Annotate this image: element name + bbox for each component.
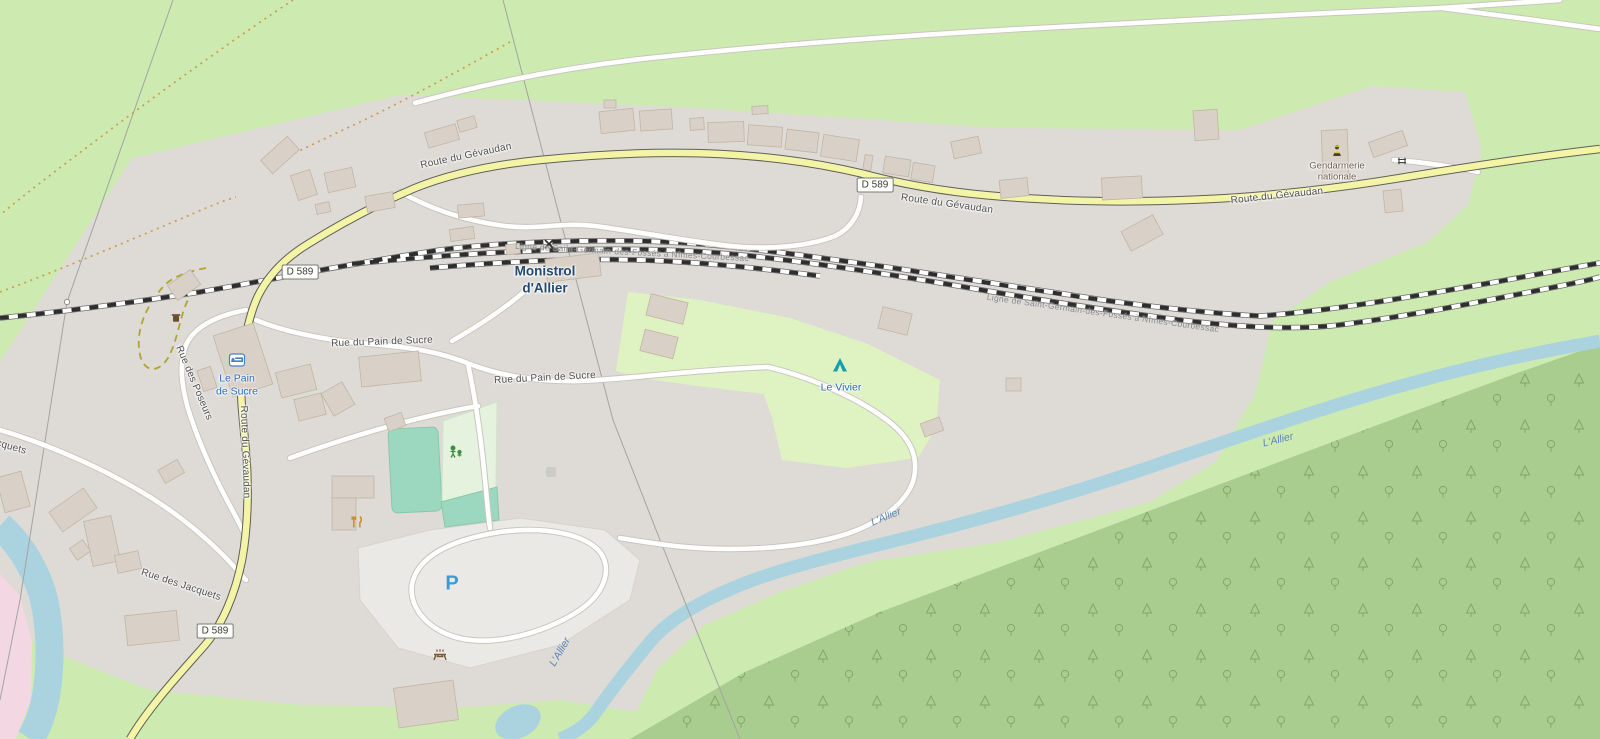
route-shield-d589-1: D 589: [282, 265, 319, 280]
station-icon: [558, 268, 565, 275]
bed-icon: [230, 354, 245, 366]
power-node: [64, 299, 69, 304]
parking-small-icon: [546, 467, 556, 477]
map-graphics: [0, 0, 1600, 739]
map-canvas[interactable]: Route du Gévaudan Route du Gévaudan Rout…: [0, 0, 1600, 739]
route-shield-d589-3: D 589: [197, 624, 234, 639]
sports-pitch: [388, 427, 442, 514]
route-shield-d589-2: D 589: [857, 178, 894, 193]
